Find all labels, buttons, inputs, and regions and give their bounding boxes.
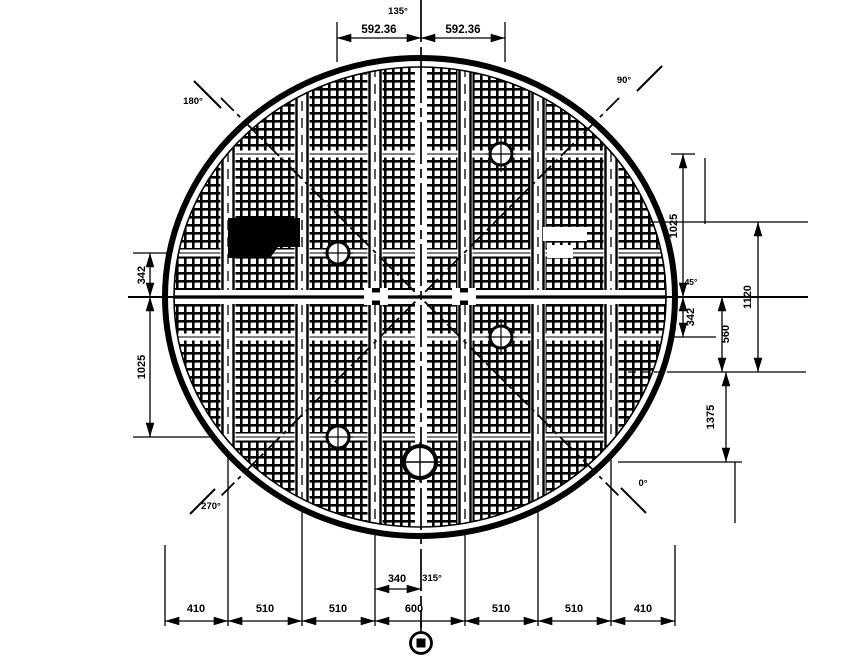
tick-0 — [621, 488, 646, 513]
angle-label-90: 90° — [617, 75, 632, 86]
dim-label-top-right: 592.36 — [445, 24, 480, 36]
datum-symbol-icon — [411, 621, 432, 654]
dim-label-left-342: 342 — [136, 266, 148, 284]
angle-label-135: 135° — [388, 6, 408, 17]
dim-label-bottom-3: 510 — [329, 603, 347, 615]
dim-label-340: 340 — [388, 573, 406, 585]
h-connector-icon — [452, 288, 476, 305]
dim-label-bottom-2: 510 — [256, 603, 274, 615]
angle-label-45: 45° — [685, 277, 698, 287]
angle-label-0: 0° — [638, 478, 647, 489]
dim-label-right-1025: 1025 — [668, 214, 680, 238]
h-connector-icon — [364, 288, 388, 305]
dim-label-top-left: 592.36 — [361, 24, 396, 36]
dim-label-left-1025: 1025 — [136, 355, 148, 379]
dim-label-right-560: 560 — [720, 325, 732, 343]
dim-label-right-342: 342 — [685, 308, 697, 326]
dim-label-bottom-6: 510 — [565, 603, 583, 615]
dim-label-right-1375: 1375 — [705, 405, 717, 429]
angle-label-315: 315° — [422, 573, 442, 584]
angle-label-270: 270° — [201, 501, 221, 512]
angle-label-180: 180° — [183, 96, 203, 107]
drawing-sheet: 135° 180° 90° 45° 0° 315° 270° 592.36 59… — [0, 0, 847, 669]
dim-label-bottom-1: 410 — [187, 603, 205, 615]
tick-90 — [637, 66, 662, 91]
dim-label-right-1120: 1120 — [742, 285, 754, 309]
dim-label-bottom-5: 510 — [492, 603, 510, 615]
plan-drawing-canvas: 135° 180° 90° 45° 0° 315° 270° 592.36 59… — [0, 0, 847, 669]
dim-label-bottom-7: 410 — [634, 603, 652, 615]
dim-label-bottom-4: 600 — [405, 603, 423, 615]
